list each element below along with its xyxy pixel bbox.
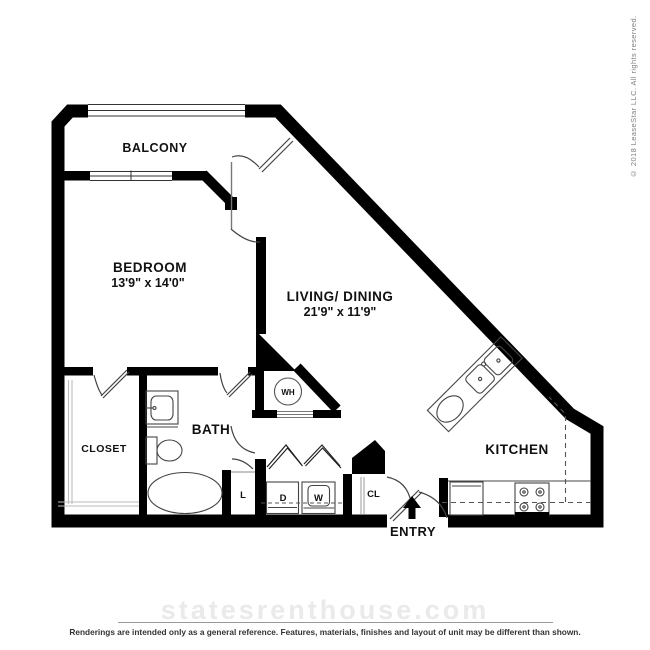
footer-divider bbox=[118, 622, 553, 623]
closet-label: CLOSET bbox=[81, 443, 127, 455]
balcony-door bbox=[232, 138, 293, 172]
living-dining-dimensions: 21'9" x 11'9" bbox=[304, 305, 377, 319]
fixtures bbox=[58, 337, 591, 517]
linen-label: L bbox=[240, 490, 246, 501]
bedroom-closet-door bbox=[94, 370, 129, 398]
linen-door-arc bbox=[232, 459, 253, 469]
balcony-inner-window bbox=[90, 170, 172, 181]
laundry-bifold-doors bbox=[267, 445, 341, 469]
hall-door bbox=[220, 372, 252, 397]
living-dining-label: LIVING/ DINING bbox=[287, 289, 394, 304]
bath-label: BATH bbox=[192, 422, 231, 437]
bath-vanity-sink bbox=[146, 391, 178, 427]
washer-label: W bbox=[314, 493, 323, 504]
water-heater-label: WH bbox=[281, 388, 295, 397]
toilet bbox=[146, 437, 182, 464]
bedroom-label: BEDROOM bbox=[113, 260, 187, 275]
refrigerator bbox=[450, 482, 483, 515]
copyright-text: © 2018 LeaseStar LLC. All rights reserve… bbox=[629, 8, 638, 178]
room-labels: BALCONY BEDROOM 13'9" x 14'0" LIVING/ DI… bbox=[81, 141, 549, 539]
coat-closet-door-arc bbox=[387, 477, 411, 502]
dryer-label: D bbox=[280, 493, 287, 504]
balcony-exterior-window bbox=[88, 103, 245, 118]
stove bbox=[515, 483, 549, 517]
floor-plan-svg: BALCONY BEDROOM 13'9" x 14'0" LIVING/ DI… bbox=[0, 0, 650, 650]
coat-closet-track bbox=[361, 477, 364, 514]
bedroom-dimensions: 13'9" x 14'0" bbox=[111, 276, 184, 290]
balcony-label: BALCONY bbox=[122, 141, 187, 155]
bath-door-arc bbox=[231, 426, 255, 453]
coat-closet-label: CL bbox=[367, 489, 380, 500]
wh-louver bbox=[277, 412, 313, 418]
entry-label: ENTRY bbox=[390, 524, 436, 539]
floor-plan-page: BALCONY BEDROOM 13'9" x 14'0" LIVING/ DI… bbox=[0, 0, 650, 650]
disclaimer-text: Renderings are intended only as a genera… bbox=[0, 627, 650, 637]
kitchen-label: KITCHEN bbox=[485, 442, 549, 457]
bathtub bbox=[148, 473, 222, 514]
